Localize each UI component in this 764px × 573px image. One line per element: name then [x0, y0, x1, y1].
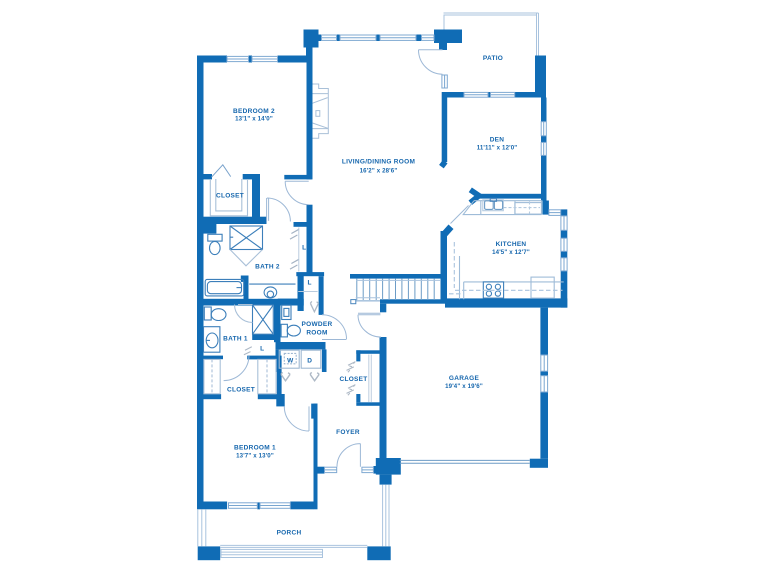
svg-text:BEDROOM 2: BEDROOM 2 — [233, 108, 275, 115]
svg-text:D: D — [307, 357, 312, 364]
svg-text:DEN: DEN — [490, 136, 505, 143]
svg-text:11'11" x 12'0": 11'11" x 12'0" — [477, 145, 518, 152]
svg-text:PORCH: PORCH — [277, 529, 302, 536]
svg-text:19'4" x 19'6": 19'4" x 19'6" — [445, 383, 483, 390]
svg-text:L: L — [302, 244, 306, 251]
svg-text:KITCHEN: KITCHEN — [496, 241, 527, 248]
svg-text:CLOSET: CLOSET — [227, 386, 255, 393]
svg-text:CLOSET: CLOSET — [339, 376, 367, 383]
svg-text:13'1" x 14'0": 13'1" x 14'0" — [235, 115, 273, 122]
svg-text:L: L — [307, 279, 311, 286]
svg-text:14'5" x 12'7": 14'5" x 12'7" — [492, 249, 530, 256]
svg-text:FOYER: FOYER — [336, 429, 360, 436]
svg-text:BATH 2: BATH 2 — [255, 263, 280, 270]
svg-text:ROOM: ROOM — [306, 329, 327, 336]
svg-text:GARAGE: GARAGE — [449, 375, 480, 382]
svg-text:PATIO: PATIO — [483, 55, 503, 62]
svg-text:BATH 1: BATH 1 — [223, 335, 248, 342]
svg-text:W: W — [287, 357, 294, 364]
svg-text:L: L — [260, 346, 264, 353]
svg-text:16'2" x 28'6": 16'2" x 28'6" — [360, 167, 398, 174]
svg-text:13'7" x 13'0": 13'7" x 13'0" — [236, 452, 274, 459]
svg-text:BEDROOM 1: BEDROOM 1 — [234, 444, 276, 451]
svg-text:POWDER: POWDER — [302, 321, 333, 328]
svg-text:CLOSET: CLOSET — [216, 192, 244, 199]
svg-text:LIVING/DINING ROOM: LIVING/DINING ROOM — [342, 158, 415, 165]
